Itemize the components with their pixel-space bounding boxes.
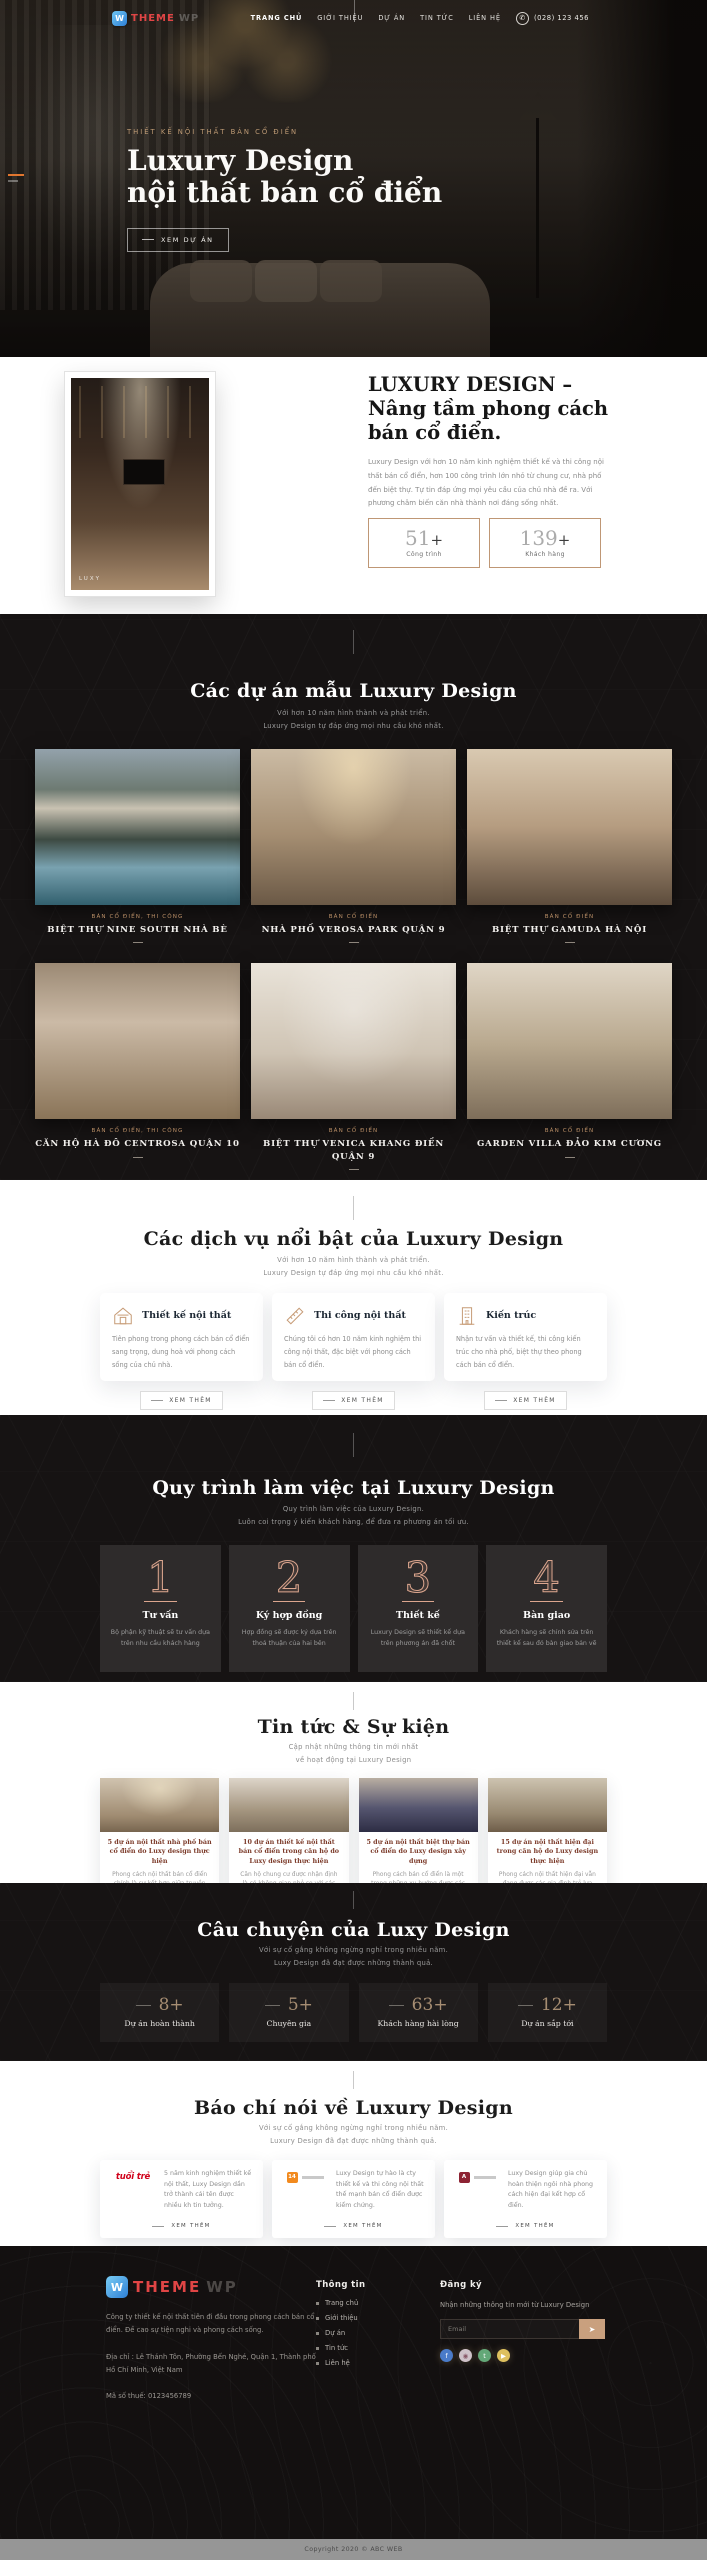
- logo-brand-text: THEME: [133, 2278, 201, 2296]
- press-subtitle-1: Với sự cố gắng không ngừng nghỉ trong nh…: [0, 2122, 707, 2135]
- dash-line: [349, 942, 359, 943]
- service-title: Thi công nội thất: [314, 1310, 406, 1321]
- press-logo-tuoitre: tuổi trẻ: [110, 2169, 156, 2212]
- project-title: CĂN HỘ HÀ ĐÔ CENTROSA QUẬN 10: [35, 1138, 240, 1150]
- project-card[interactable]: BÁN CỔ ĐIỂN BIỆT THỰ VENICA KHANG ĐIỀN Q…: [251, 963, 456, 1170]
- stat-suffix: +: [299, 1995, 313, 2015]
- logo-suffix-text: WP: [179, 13, 199, 24]
- services-heading: Các dịch vụ nổi bật của Luxury Design: [0, 1228, 707, 1250]
- news-grid: 5 dự án nội thất nhà phố bán cổ điển do …: [100, 1778, 607, 1883]
- press-card: 14 Luxy Design tự hào là cty thiết kế và…: [272, 2160, 435, 2238]
- press-grid: tuổi trẻ 5 năm kinh nghiệm thiết kế nội …: [100, 2160, 607, 2238]
- stat-suffix: +: [433, 1995, 447, 2015]
- news-card[interactable]: 10 dự án thiết kế nội thất bán cổ điển t…: [229, 1778, 348, 1883]
- hero-section: W THEME WP TRANG CHỦ GIỚI THIỆU DỰ ÁN TI…: [0, 0, 707, 357]
- stat-value: 139+: [520, 528, 571, 548]
- press-card: A Luxy Design giúp gia chủ hoàn thiện ng…: [444, 2160, 607, 2238]
- hero-title: Luxury Design nội thất bán cổ điển: [127, 145, 442, 210]
- footer-about-text: Công ty thiết kế nội thất tiên đi đầu tr…: [106, 2311, 316, 2338]
- press-more-button[interactable]: XEM THÊM: [324, 2223, 382, 2229]
- footer-info-title: Thông tin: [316, 2280, 365, 2290]
- news-excerpt: Căn hộ chung cư được nhận định là có khô…: [237, 1871, 340, 1883]
- service-text: Nhận tư vấn và thiết kế, thi công kiến t…: [456, 1333, 595, 1372]
- news-image: [229, 1778, 348, 1832]
- press-more-label: XEM THÊM: [171, 2223, 210, 2229]
- footer-link-contact[interactable]: Liên hệ: [316, 2359, 365, 2367]
- project-card[interactable]: BÁN CỔ ĐIỂN NHÀ PHỐ VEROSA PARK QUẬN 9: [251, 749, 456, 943]
- logo-icon: W: [112, 11, 127, 26]
- decorative-vertical-line: [353, 1891, 354, 1909]
- news-heading: Tin tức & Sự kiện: [0, 1716, 707, 1738]
- footer-link-label: Tin tức: [325, 2344, 348, 2352]
- project-card[interactable]: BÁN CỔ ĐIỂN GARDEN VILLA ĐẢO KIM CƯƠNG: [467, 963, 672, 1170]
- services-subtitle-1: Với hơn 10 năm hình thành và phát triển.: [0, 1254, 707, 1267]
- hero-title-line2: nội thất bán cổ điển: [127, 176, 442, 209]
- hero-title-line1: Luxury Design: [127, 144, 353, 177]
- project-category: BÁN CỔ ĐIỂN: [251, 1128, 456, 1134]
- press-more-button[interactable]: XEM THÊM: [496, 2223, 554, 2229]
- decorative-vertical-line: [353, 1692, 354, 1710]
- about-image: LUXY: [65, 372, 215, 596]
- projects-grid: BÁN CỔ ĐIỂN, THI CÔNG BIỆT THỰ NINE SOUT…: [35, 749, 672, 1170]
- project-image: [251, 963, 456, 1119]
- news-subtitle-1: Cập nhật những thông tin mới nhất: [0, 1741, 707, 1754]
- footer-link-home[interactable]: Trang chủ: [316, 2299, 365, 2307]
- press-quote: Luxy Design giúp gia chủ hoàn thiện ngôi…: [508, 2169, 597, 2212]
- dash-line: [142, 239, 154, 240]
- twitter-icon[interactable]: t: [478, 2349, 491, 2362]
- news-title: 5 dự án nội thất biệt thự bán cổ điển do…: [366, 1838, 471, 1867]
- footer-address: Địa chỉ : Lê Thánh Tôn, Phường Bến Nghé,…: [106, 2351, 316, 2378]
- image-watermark: LUXY: [79, 576, 101, 582]
- footer-subscribe-text: Nhận những thông tin mới từ Luxury Desig…: [440, 2299, 605, 2311]
- building-icon: [456, 1305, 478, 1327]
- process-step-4: 4 Bàn giao Khách hàng sẽ chỉnh sửa trên …: [486, 1545, 607, 1672]
- site-logo[interactable]: W THEME WP: [112, 11, 199, 26]
- bullet-icon: [316, 2317, 319, 2320]
- press-logo-magazine: A: [454, 2169, 500, 2212]
- footer: W THEME WP Công ty thiết kế nội thất tiê…: [0, 2246, 707, 2539]
- project-card[interactable]: BÁN CỔ ĐIỂN, THI CÔNG BIỆT THỰ NINE SOUT…: [35, 749, 240, 943]
- projects-heading: Các dự án mẫu Luxury Design: [0, 680, 707, 702]
- story-stat-label: Khách hàng hài lòng: [377, 2019, 458, 2028]
- projects-subtitle-2: Luxury Design tự đáp ứng mọi nhu cầu khó…: [0, 720, 707, 733]
- story-stat-clients: 63+ Khách hàng hài lòng: [359, 1983, 478, 2042]
- stat-label: Khách hàng: [525, 551, 565, 558]
- stat-suffix: +: [558, 531, 571, 549]
- press-card: tuổi trẻ 5 năm kinh nghiệm thiết kế nội …: [100, 2160, 263, 2238]
- news-title: 10 dự án thiết kế nội thất bán cổ điển t…: [236, 1838, 341, 1867]
- process-subtitle-1: Quy trình làm việc của Luxury Design.: [0, 1503, 707, 1516]
- project-category: BÁN CỔ ĐIỂN: [251, 914, 456, 920]
- step-text: Khách hàng sẽ chỉnh sửa trên thiết kế sa…: [495, 1627, 598, 1650]
- footer-info-column: Thông tin Trang chủ Giới thiệu Dự án Tin…: [316, 2280, 365, 2367]
- about-stats: 51+ Công trình 139+ Khách hàng: [368, 518, 601, 568]
- process-steps: 1 Tư vấn Bộ phận kỹ thuật sẽ tư vấn dựa …: [100, 1545, 607, 1672]
- dash-line: [324, 2226, 336, 2227]
- story-stat-value: 12+: [541, 1997, 577, 2014]
- step-number: 2: [273, 1557, 306, 1602]
- copyright-text: Copyright 2020 © ABC WEB: [304, 2546, 402, 2553]
- story-heading: Câu chuyện của Luxy Design: [0, 1919, 707, 1941]
- logo-icon: W: [106, 2276, 128, 2298]
- dash-line: [152, 2226, 164, 2227]
- press-more-button[interactable]: XEM THÊM: [152, 2223, 210, 2229]
- process-subtitle-2: Luôn coi trọng ý kiến khách hàng, để đưa…: [0, 1516, 707, 1529]
- instagram-icon[interactable]: ◉: [459, 2349, 472, 2362]
- service-more-label: XEM THÊM: [341, 1397, 384, 1404]
- story-subtitle-2: Luxy Design đã đạt được những thành quả.: [0, 1957, 707, 1970]
- stat-number: 12: [541, 1995, 563, 2015]
- project-title: BIỆT THỰ VENICA KHANG ĐIỀN QUẬN 9: [251, 1138, 456, 1163]
- services-section: Các dịch vụ nổi bật của Luxury Design Vớ…: [0, 1180, 707, 1415]
- dash-line: [518, 2005, 533, 2006]
- footer-link-news[interactable]: Tin tức: [316, 2344, 365, 2352]
- dash-line: [136, 2005, 151, 2006]
- bullet-icon: [316, 2362, 319, 2365]
- phone-link[interactable]: ✆ (028) 123 456: [516, 12, 589, 25]
- press-logo-wordmark: [474, 2176, 496, 2179]
- footer-link-about[interactable]: Giới thiệu: [316, 2314, 365, 2322]
- send-button[interactable]: ➤: [579, 2319, 605, 2339]
- press-logo-mark: 14: [287, 2172, 298, 2183]
- service-text: Chúng tôi có hơn 10 năm kinh nghiệm thi …: [284, 1333, 423, 1372]
- house-icon: [112, 1305, 134, 1327]
- step-title: Tư vấn: [109, 1610, 212, 1621]
- about-paragraph: Luxury Design với hơn 10 năm kinh nghiệm…: [368, 456, 613, 511]
- footer-link-label: Giới thiệu: [325, 2314, 358, 2322]
- view-projects-label: XEM DỰ ÁN: [161, 236, 214, 244]
- social-icons: f ◉ t ▶: [440, 2349, 605, 2362]
- step-number: 3: [402, 1557, 435, 1602]
- dash-line: [349, 1169, 359, 1170]
- service-title: Thiết kế nội thất: [142, 1310, 231, 1321]
- step-title: Ký hợp đồng: [238, 1610, 341, 1621]
- story-section: Câu chuyện của Luxy Design Với sự cố gắn…: [0, 1883, 707, 2061]
- footer-subscribe-column: Đăng ký Nhận những thông tin mới từ Luxu…: [440, 2280, 605, 2362]
- project-card[interactable]: BÁN CỔ ĐIỂN, THI CÔNG CĂN HỘ HÀ ĐÔ CENTR…: [35, 963, 240, 1170]
- about-text-block: LUXURY DESIGN – Nâng tầm phong cách bán …: [368, 373, 628, 533]
- view-projects-button[interactable]: XEM DỰ ÁN: [127, 228, 229, 252]
- main-nav: TRANG CHỦ GIỚI THIỆU DỰ ÁN TIN TỨC LIÊN …: [251, 12, 589, 25]
- header: W THEME WP TRANG CHỦ GIỚI THIỆU DỰ ÁN TI…: [0, 0, 707, 36]
- press-logo-kenh14: 14: [282, 2169, 328, 2212]
- step-text: Luxury Design sẽ thiết kế dựa trên phươn…: [367, 1627, 470, 1650]
- dash-line: [565, 942, 575, 943]
- story-stat-value: 8+: [159, 1997, 184, 2014]
- news-title: 15 dự án nội thất hiện đại trong căn hộ …: [495, 1838, 600, 1867]
- footer-company-column: W THEME WP Công ty thiết kế nội thất tiê…: [106, 2276, 316, 2403]
- phone-number: (028) 123 456: [534, 14, 589, 22]
- process-section: Quy trình làm việc tại Luxury Design Quy…: [0, 1415, 707, 1682]
- footer-link-label: Liên hệ: [325, 2359, 350, 2367]
- projects-subtitle-1: Với hơn 10 năm hình thành và phát triển.: [0, 707, 707, 720]
- hero-slider-indicator: [8, 174, 24, 182]
- service-more-label: XEM THÊM: [169, 1397, 212, 1404]
- service-text: Tiên phong trong phong cách bán cổ điển …: [112, 1333, 251, 1372]
- projects-section: Các dự án mẫu Luxury Design Với hơn 10 n…: [0, 614, 707, 1180]
- service-more-button[interactable]: XEM THÊM: [484, 1391, 567, 1410]
- project-image: [467, 963, 672, 1119]
- stat-value: 51+: [405, 528, 443, 548]
- logo-brand-text: THEME: [131, 13, 175, 24]
- project-category: BÁN CỔ ĐIỂN, THI CÔNG: [35, 1128, 240, 1134]
- project-title: BIỆT THỰ GAMUDA HÀ NỘI: [467, 924, 672, 936]
- stat-clients: 139+ Khách hàng: [489, 518, 601, 568]
- service-more-button[interactable]: XEM THÊM: [140, 1391, 223, 1410]
- slider-dot-active[interactable]: [8, 174, 24, 176]
- project-image: [35, 963, 240, 1119]
- decorative-vertical-line: [353, 2071, 354, 2089]
- news-title: 5 dự án nội thất nhà phố bán cổ điển do …: [107, 1838, 212, 1867]
- press-quote: 5 năm kinh nghiệm thiết kế nội thất, Lux…: [164, 2169, 253, 2212]
- dash-line: [151, 1400, 163, 1401]
- news-card[interactable]: 15 dự án nội thất hiện đại trong căn hộ …: [488, 1778, 607, 1883]
- services-subtitle-2: Luxury Design tự đáp ứng mọi nhu cầu khó…: [0, 1267, 707, 1280]
- press-logo-mark: A: [459, 2172, 470, 2183]
- services-buttons: XEM THÊM XEM THÊM XEM THÊM: [100, 1391, 607, 1410]
- stat-suffix: +: [169, 1995, 183, 2015]
- news-excerpt: Phong cách nội thất bán cổ điển chính là…: [108, 1871, 211, 1883]
- project-category: BÁN CỔ ĐIỂN: [467, 914, 672, 920]
- news-excerpt: Phong cách bán cổ điển là một trong nhữn…: [367, 1871, 470, 1883]
- bullet-icon: [316, 2332, 319, 2335]
- dash-line: [389, 2005, 404, 2006]
- services-grid: Thiết kế nội thất Tiên phong trong phong…: [100, 1293, 607, 1382]
- phone-icon: ✆: [516, 12, 529, 25]
- news-excerpt: Phong cách nội thất hiện đại vẫn đang đư…: [496, 1871, 599, 1883]
- stat-label: Công trình: [406, 551, 441, 558]
- project-image: [467, 749, 672, 905]
- press-section: Báo chí nói về Luxury Design Với sự cố g…: [0, 2061, 707, 2246]
- about-heading: LUXURY DESIGN – Nâng tầm phong cách bán …: [368, 373, 628, 444]
- decorative-vertical-line: [353, 630, 354, 654]
- story-stat-label: Chuyên gia: [267, 2019, 312, 2028]
- step-text: Hợp đồng sẽ được ký dựa trên thoả thuận …: [238, 1627, 341, 1650]
- stat-number: 8: [159, 1995, 170, 2015]
- tv-decoration: [123, 459, 165, 485]
- decorative-vertical-line: [353, 1433, 354, 1457]
- project-title: GARDEN VILLA ĐẢO KIM CƯƠNG: [467, 1138, 672, 1150]
- story-stat-value: 5+: [288, 1997, 313, 2014]
- step-title: Bàn giao: [495, 1610, 598, 1621]
- process-step-3: 3 Thiết kế Luxury Design sẽ thiết kế dựa…: [358, 1545, 479, 1672]
- dash-line: [133, 942, 143, 943]
- press-quote: Luxy Design tự hào là cty thiết kế và th…: [336, 2169, 425, 2212]
- press-more-label: XEM THÊM: [343, 2223, 382, 2229]
- news-image: [488, 1778, 607, 1832]
- logo-suffix-text: WP: [206, 2278, 238, 2296]
- bullet-icon: [316, 2347, 319, 2350]
- story-subtitle-1: Với sự cố gắng không ngừng nghỉ trong nh…: [0, 1944, 707, 1957]
- youtube-icon[interactable]: ▶: [497, 2349, 510, 2362]
- nav-item-about[interactable]: GIỚI THIỆU: [317, 14, 363, 22]
- service-more-button[interactable]: XEM THÊM: [312, 1391, 395, 1410]
- news-card[interactable]: 5 dự án nội thất biệt thự bán cổ điển do…: [359, 1778, 478, 1883]
- step-number: 1: [144, 1557, 177, 1602]
- press-more-label: XEM THÊM: [515, 2223, 554, 2229]
- story-stat-value: 63+: [412, 1997, 448, 2014]
- story-stat-completed: 8+ Dự án hoàn thành: [100, 1983, 219, 2042]
- stat-projects: 51+ Công trình: [368, 518, 480, 568]
- press-logo-wordmark: [302, 2176, 324, 2179]
- bullet-icon: [316, 2302, 319, 2305]
- news-section: Tin tức & Sự kiện Cập nhật những thông t…: [0, 1682, 707, 1883]
- project-image: [251, 749, 456, 905]
- project-title: NHÀ PHỐ VEROSA PARK QUẬN 9: [251, 924, 456, 936]
- news-image: [100, 1778, 219, 1832]
- shelf-lighting-decoration: [79, 386, 201, 438]
- service-more-label: XEM THÊM: [513, 1397, 556, 1404]
- project-title: BIỆT THỰ NINE SOUTH NHÀ BÈ: [35, 924, 240, 936]
- dash-line: [495, 1400, 507, 1401]
- dash-line: [265, 2005, 280, 2006]
- process-step-2: 2 Ký hợp đồng Hợp đồng sẽ được ký dựa tr…: [229, 1545, 350, 1672]
- service-card-architecture: Kiến trúc Nhận tư vấn và thiết kế, thi c…: [444, 1293, 607, 1382]
- step-text: Bộ phận kỹ thuật sẽ tư vấn dựa trên nhu …: [109, 1627, 212, 1650]
- news-subtitle-2: về hoạt động tại Luxury Design: [0, 1754, 707, 1767]
- stat-number: 51: [405, 526, 430, 550]
- story-stat-label: Dự án sắp tới: [521, 2019, 573, 2028]
- project-image: [35, 749, 240, 905]
- footer-link-label: Trang chủ: [325, 2299, 358, 2307]
- press-logo-text: tuổi trẻ: [116, 2172, 150, 2182]
- copyright-bar: Copyright 2020 © ABC WEB: [0, 2539, 707, 2560]
- dash-line: [133, 1157, 143, 1158]
- process-step-1: 1 Tư vấn Bộ phận kỹ thuật sẽ tư vấn dựa …: [100, 1545, 221, 1672]
- stat-suffix: +: [430, 531, 443, 549]
- hero-eyebrow: THIẾT KẾ NỘI THẤT BÁN CỔ ĐIỂN: [127, 128, 442, 136]
- project-category: BÁN CỔ ĐIỂN: [467, 1128, 672, 1134]
- project-category: BÁN CỔ ĐIỂN, THI CÔNG: [35, 914, 240, 920]
- service-card-construction: Thi công nội thất Chúng tôi có hơn 10 nă…: [272, 1293, 435, 1382]
- footer-tax-id: Mã số thuế: 0123456789: [106, 2390, 316, 2403]
- hero-content: THIẾT KẾ NỘI THẤT BÁN CỔ ĐIỂN Luxury Des…: [127, 128, 442, 252]
- story-stat-label: Dự án hoàn thành: [124, 2019, 195, 2028]
- step-title: Thiết kế: [367, 1610, 470, 1621]
- stat-number: 63: [412, 1995, 434, 2015]
- dash-line: [323, 1400, 335, 1401]
- press-heading: Báo chí nói về Luxury Design: [0, 2097, 707, 2119]
- stat-number: 139: [520, 526, 558, 550]
- footer-link-label: Dự án: [325, 2329, 345, 2337]
- email-input[interactable]: [440, 2319, 579, 2339]
- footer-logo[interactable]: W THEME WP: [106, 2276, 316, 2298]
- stat-suffix: +: [563, 1995, 577, 2015]
- nav-item-projects[interactable]: DỰ ÁN: [378, 14, 405, 22]
- nav-item-contact[interactable]: LIÊN HỆ: [469, 14, 501, 22]
- send-icon: ➤: [589, 2325, 596, 2334]
- news-image: [359, 1778, 478, 1832]
- dash-line: [565, 1157, 575, 1158]
- ruler-pencil-icon: [284, 1305, 306, 1327]
- story-stats: 8+ Dự án hoàn thành 5+ Chuyên gia 63+ Kh…: [100, 1983, 607, 2042]
- footer-link-projects[interactable]: Dự án: [316, 2329, 365, 2337]
- stat-number: 5: [288, 1995, 299, 2015]
- decorative-vertical-line: [353, 1196, 354, 1220]
- service-title: Kiến trúc: [486, 1310, 536, 1321]
- nav-item-news[interactable]: TIN TỨC: [420, 14, 454, 22]
- facebook-icon[interactable]: f: [440, 2349, 453, 2362]
- news-card[interactable]: 5 dự án nội thất nhà phố bán cổ điển do …: [100, 1778, 219, 1883]
- press-subtitle-2: Luxury Design đã đạt được những thành qu…: [0, 2135, 707, 2148]
- about-section: LUXY LUXURY DESIGN – Nâng tầm phong cách…: [0, 357, 707, 614]
- story-stat-experts: 5+ Chuyên gia: [229, 1983, 348, 2042]
- step-number: 4: [530, 1557, 563, 1602]
- slider-dot[interactable]: [8, 180, 18, 182]
- process-heading: Quy trình làm việc tại Luxury Design: [0, 1477, 707, 1499]
- footer-subscribe-title: Đăng ký: [440, 2280, 605, 2290]
- footer-links: Trang chủ Giới thiệu Dự án Tin tức Liên …: [316, 2299, 365, 2367]
- dash-line: [496, 2226, 508, 2227]
- subscribe-form: ➤: [440, 2319, 605, 2339]
- nav-item-home[interactable]: TRANG CHỦ: [251, 14, 303, 22]
- story-stat-upcoming: 12+ Dự án sắp tới: [488, 1983, 607, 2042]
- service-card-design: Thiết kế nội thất Tiên phong trong phong…: [100, 1293, 263, 1382]
- project-card[interactable]: BÁN CỔ ĐIỂN BIỆT THỰ GAMUDA HÀ NỘI: [467, 749, 672, 943]
